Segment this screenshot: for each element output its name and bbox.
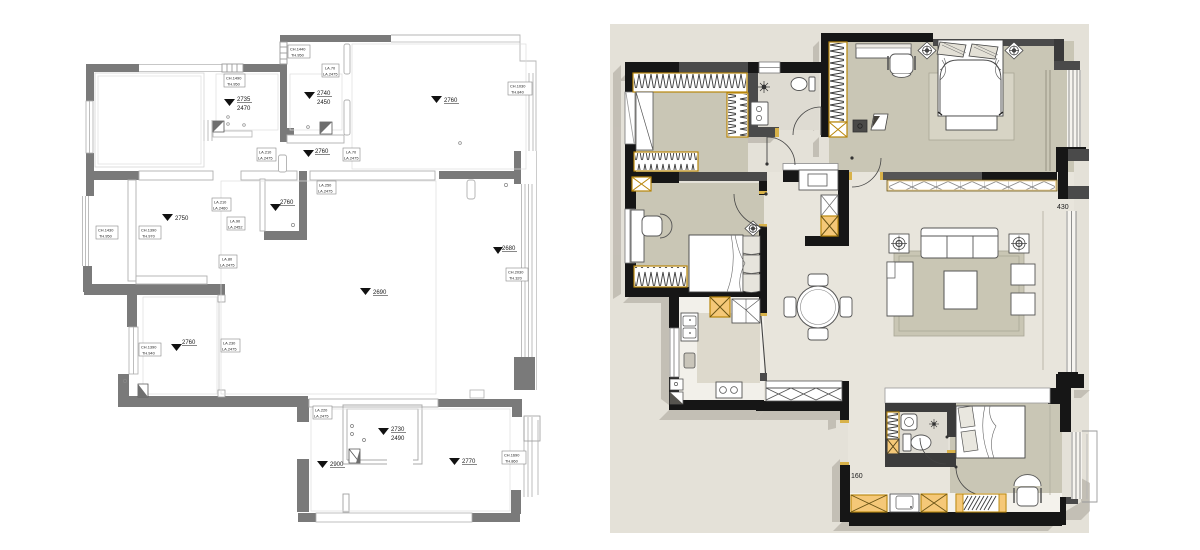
svg-text:430: 430 (1057, 204, 1069, 211)
svg-text:CH.1390: CH.1390 (141, 228, 157, 233)
svg-text:CH.1490: CH.1490 (226, 76, 242, 81)
svg-text:CH.1430: CH.1430 (98, 228, 114, 233)
svg-text:2750: 2750 (175, 216, 189, 222)
svg-text:LA.2475: LA.2475 (314, 414, 329, 419)
svg-text:LA.2452: LA.2452 (228, 225, 243, 230)
svg-text:LA.2475: LA.2475 (318, 189, 333, 194)
svg-text:LA.230: LA.230 (223, 341, 236, 346)
svg-text:LA.2460: LA.2460 (213, 206, 228, 211)
svg-text:CH.1390: CH.1390 (141, 345, 157, 350)
svg-text:TH.860: TH.860 (505, 459, 519, 464)
svg-text:TH.950: TH.950 (227, 82, 241, 87)
svg-text:LA.250: LA.250 (319, 183, 332, 188)
svg-text:160: 160 (851, 473, 863, 480)
svg-text:LA.2475: LA.2475 (344, 156, 359, 161)
svg-text:LA.70: LA.70 (346, 150, 357, 155)
svg-text:LA.2475: LA.2475 (258, 156, 273, 161)
svg-text:LA.210: LA.210 (259, 150, 272, 155)
svg-text:LA.2475: LA.2475 (323, 72, 338, 77)
svg-text:TH.950: TH.950 (291, 53, 305, 58)
svg-text:CH.1690: CH.1690 (504, 453, 520, 458)
svg-text:TH.940: TH.940 (142, 351, 156, 356)
svg-text:LA.210: LA.210 (214, 200, 227, 205)
svg-text:LA.70: LA.70 (325, 66, 336, 71)
svg-text:TH.320: TH.320 (509, 276, 523, 281)
svg-text:CH.2030: CH.2030 (508, 270, 524, 275)
svg-text:2470: 2470 (237, 106, 251, 112)
svg-text:2450: 2450 (317, 100, 331, 106)
svg-text:LA.2475: LA.2475 (222, 347, 237, 352)
svg-text:2490: 2490 (391, 436, 405, 442)
svg-text:CH.1030: CH.1030 (510, 84, 526, 89)
svg-text:LA.220: LA.220 (315, 408, 328, 413)
svg-text:LA.90: LA.90 (230, 219, 241, 224)
svg-text:CH.1440: CH.1440 (290, 47, 306, 52)
svg-text:TH.970: TH.970 (142, 234, 156, 239)
svg-text:TH.840: TH.840 (511, 90, 525, 95)
svg-text:LA.2475: LA.2475 (220, 263, 235, 268)
svg-text:TH.950: TH.950 (99, 234, 113, 239)
svg-text:LA.80: LA.80 (222, 257, 233, 262)
